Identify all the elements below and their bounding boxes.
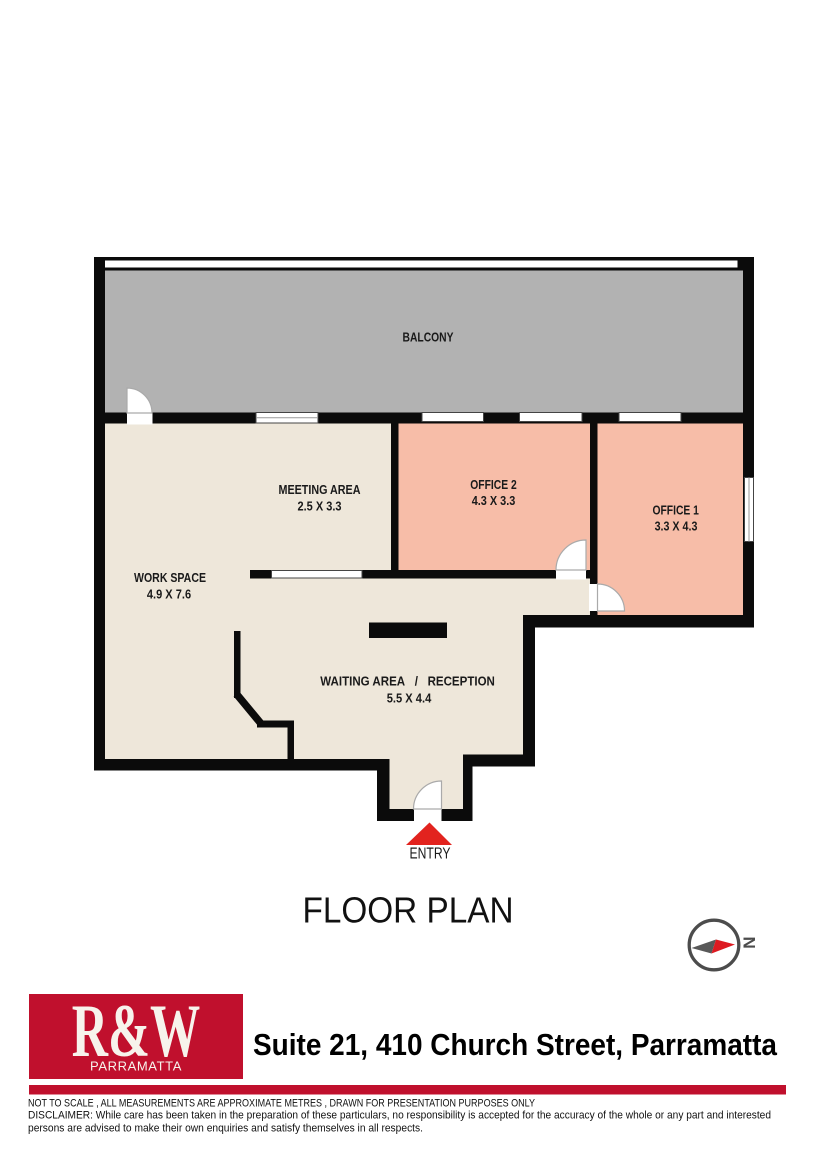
svg-text:ENTRY: ENTRY: [410, 846, 451, 863]
svg-text:5.5 X 4.4: 5.5 X 4.4: [387, 691, 432, 706]
svg-text:PARRAMATTA: PARRAMATTA: [90, 1059, 182, 1074]
svg-text:2.5 X 3.3: 2.5 X 3.3: [298, 499, 342, 514]
svg-text:Suite 21, 410 Church Street, P: Suite 21, 410 Church Street, Parramatta: [253, 1027, 778, 1062]
svg-text:BALCONY: BALCONY: [403, 330, 454, 345]
svg-text:DISCLAIMER: While care has be: DISCLAIMER: While care has been taken in…: [28, 1110, 771, 1122]
svg-text:WORK SPACE: WORK SPACE: [134, 570, 206, 585]
svg-text:OFFICE 2: OFFICE 2: [470, 477, 517, 492]
svg-text:4.9 X 7.6: 4.9 X 7.6: [147, 587, 191, 602]
svg-text:OFFICE 1: OFFICE 1: [652, 503, 699, 518]
svg-text:3.3 X 4.3: 3.3 X 4.3: [655, 519, 698, 534]
svg-text:NOT TO SCALE , ALL MEASUREMENT: NOT TO SCALE , ALL MEASUREMENTS ARE APPR…: [28, 1098, 535, 1110]
svg-text:FLOOR PLAN: FLOOR PLAN: [303, 890, 514, 931]
svg-text:4.3 X 3.3: 4.3 X 3.3: [472, 493, 516, 508]
svg-text:persons are advised to make th: persons are advised to make their own en…: [28, 1123, 423, 1135]
svg-text:N: N: [740, 937, 759, 949]
svg-text:WAITING AREA / RECEPTION: WAITING AREA / RECEPTION: [320, 674, 495, 689]
svg-text:MEETING AREA: MEETING AREA: [279, 482, 361, 497]
